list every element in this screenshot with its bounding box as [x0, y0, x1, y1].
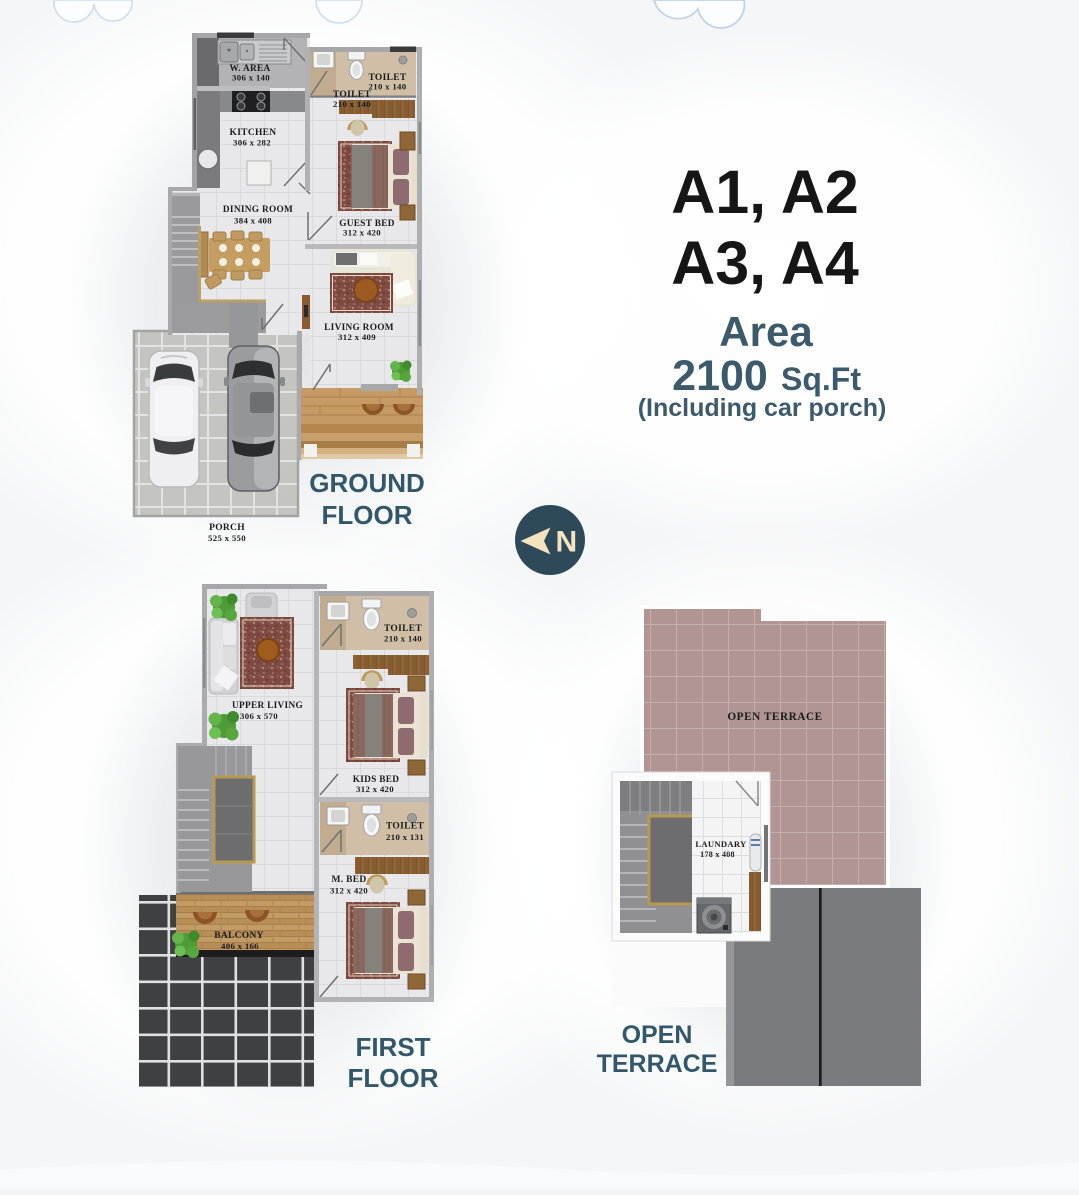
svg-text:GROUND: GROUND [309, 468, 425, 498]
svg-text:DINING ROOM: DINING ROOM [223, 205, 293, 215]
svg-text:384 x 408: 384 x 408 [234, 216, 272, 226]
svg-text:210 x 131: 210 x 131 [386, 832, 424, 842]
svg-text:FLOOR: FLOOR [348, 1063, 439, 1093]
svg-text:306 x 570: 306 x 570 [240, 711, 278, 721]
svg-text:A3, A4: A3, A4 [671, 229, 859, 297]
svg-text:525 x 550: 525 x 550 [208, 533, 246, 543]
svg-text:FLOOR: FLOOR [322, 500, 413, 530]
svg-text:312 x 420: 312 x 420 [356, 784, 394, 794]
svg-text:TOILET: TOILET [386, 822, 424, 832]
svg-text:OPEN: OPEN [622, 1021, 693, 1049]
svg-text:TOILET: TOILET [384, 624, 422, 634]
svg-text:312 x 420: 312 x 420 [330, 886, 368, 896]
svg-text:312 x 409: 312 x 409 [338, 332, 376, 342]
svg-text:406 x 166: 406 x 166 [221, 941, 259, 951]
svg-text:210 x 140: 210 x 140 [384, 634, 422, 644]
svg-text:KITCHEN: KITCHEN [230, 128, 277, 138]
svg-text:210 x 140: 210 x 140 [369, 82, 407, 92]
svg-text:BALCONY: BALCONY [214, 931, 264, 941]
svg-text:178 x 408: 178 x 408 [700, 850, 735, 859]
svg-text:FIRST: FIRST [355, 1032, 430, 1062]
svg-text:2100: 2100 [672, 352, 768, 400]
svg-text:210 x 140: 210 x 140 [333, 99, 371, 109]
svg-text:LAUNDARY: LAUNDARY [695, 839, 747, 849]
svg-text:306 x 282: 306 x 282 [233, 138, 271, 148]
svg-text:M. BED: M. BED [331, 875, 366, 885]
svg-text:PORCH: PORCH [209, 523, 245, 533]
svg-text:TERRACE: TERRACE [597, 1050, 718, 1078]
svg-text:Area: Area [719, 308, 813, 355]
svg-text:A1, A2: A1, A2 [671, 158, 859, 226]
svg-text:UPPER LIVING: UPPER LIVING [232, 701, 303, 711]
svg-text:Sq.Ft: Sq.Ft [781, 361, 861, 397]
svg-text:OPEN TERRACE: OPEN TERRACE [727, 711, 822, 723]
svg-text:N: N [556, 526, 578, 559]
svg-text:(Including car porch): (Including car porch) [638, 394, 887, 422]
svg-text:312 x 420: 312 x 420 [343, 228, 381, 238]
svg-text:306 x 140: 306 x 140 [232, 73, 270, 83]
